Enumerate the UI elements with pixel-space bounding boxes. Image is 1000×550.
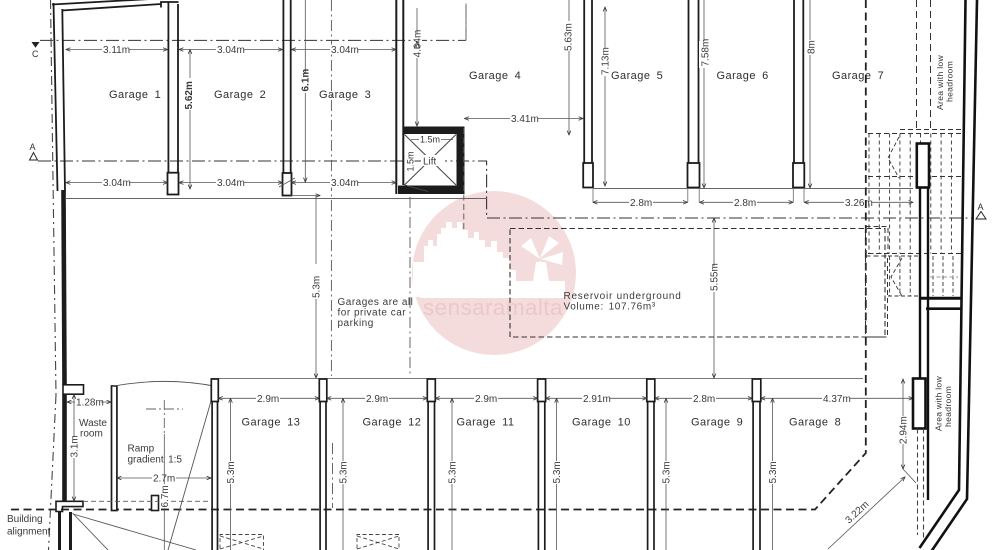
svg-text:headroom: headroom [945, 61, 955, 102]
svg-text:Reservoir underground: Reservoir underground [564, 291, 682, 302]
svg-text:1.28m: 1.28m [76, 398, 104, 409]
svg-text:gradient 1:5: gradient 1:5 [128, 455, 183, 466]
svg-text:for private car: for private car [338, 308, 407, 319]
svg-text:alignment: alignment [7, 527, 51, 538]
svg-text:2.9m: 2.9m [366, 394, 388, 405]
svg-text:7.13m: 7.13m [601, 47, 612, 75]
svg-text:Area with low: Area with low [934, 376, 944, 431]
svg-text:Garage 9: Garage 9 [691, 417, 743, 429]
svg-text:2.91m: 2.91m [583, 394, 611, 405]
svg-text:Garage 7: Garage 7 [832, 70, 884, 82]
svg-text:8m: 8m [807, 40, 818, 54]
svg-text:6.1m: 6.1m [301, 69, 312, 92]
svg-text:5.55m: 5.55m [710, 263, 721, 291]
svg-text:A: A [978, 202, 984, 212]
svg-text:Volume: 107.76m³: Volume: 107.76m³ [564, 302, 656, 313]
svg-text:2.94m: 2.94m [899, 416, 910, 444]
svg-text:5.62m: 5.62m [184, 81, 195, 109]
svg-text:Garage 11: Garage 11 [457, 417, 515, 429]
svg-text:3.04m: 3.04m [331, 45, 359, 56]
svg-text:3.1m: 3.1m [70, 435, 81, 457]
svg-text:5.3m: 5.3m [448, 461, 459, 483]
svg-text:sensaramalta: sensaramalta [423, 295, 563, 320]
svg-text:3.04m: 3.04m [217, 178, 245, 189]
svg-text:4.37m: 4.37m [823, 394, 851, 405]
svg-text:5.3m: 5.3m [662, 461, 673, 483]
svg-text:Garage 10: Garage 10 [572, 417, 631, 429]
svg-text:2.8m: 2.8m [630, 198, 652, 209]
svg-text:Garage 6: Garage 6 [717, 70, 769, 82]
svg-text:room: room [80, 429, 103, 440]
svg-text:headroom: headroom [943, 386, 953, 427]
svg-text:parking: parking [338, 318, 374, 329]
svg-text:3.04m: 3.04m [331, 178, 359, 189]
svg-text:Ramp: Ramp [128, 444, 155, 455]
svg-text:Garage 2: Garage 2 [214, 89, 266, 101]
svg-text:Waste: Waste [79, 418, 107, 429]
svg-text:3.04m: 3.04m [217, 45, 245, 56]
svg-text:7.58m: 7.58m [701, 39, 712, 67]
svg-text:Area with low: Area with low [935, 55, 945, 110]
svg-text:2.8m: 2.8m [734, 198, 756, 209]
svg-text:Garages are all: Garages are all [338, 297, 414, 308]
svg-text:3.11m: 3.11m [103, 45, 130, 56]
svg-text:5.3m: 5.3m [768, 461, 779, 483]
svg-text:Lift: Lift [423, 157, 437, 168]
svg-text:Garage 13: Garage 13 [242, 417, 301, 429]
svg-text:1.5m: 1.5m [420, 135, 440, 145]
svg-text:Garage 5: Garage 5 [611, 70, 663, 82]
svg-text:3.04m: 3.04m [103, 178, 131, 189]
svg-text:Garage 1: Garage 1 [109, 89, 161, 101]
svg-text:C: C [32, 49, 39, 59]
svg-text:2.9m: 2.9m [475, 394, 497, 405]
svg-text:5.3m: 5.3m [339, 461, 350, 483]
svg-text:5.3m: 5.3m [226, 461, 237, 483]
svg-text:5.3m: 5.3m [552, 461, 563, 483]
svg-text:Garage 8: Garage 8 [789, 417, 841, 429]
svg-text:5.63m: 5.63m [564, 23, 575, 51]
svg-text:2.9m: 2.9m [257, 394, 279, 405]
svg-text:Building: Building [7, 514, 43, 525]
svg-text:Garage 3: Garage 3 [319, 89, 371, 101]
svg-text:2.8m: 2.8m [693, 394, 715, 405]
svg-text:6.7m: 6.7m [160, 485, 171, 507]
svg-text:Garage 12: Garage 12 [363, 417, 422, 429]
svg-text:5.3m: 5.3m [312, 276, 323, 298]
svg-text:1.5m: 1.5m [406, 151, 416, 171]
svg-text:Garage 4: Garage 4 [469, 70, 521, 82]
svg-text:A: A [30, 142, 36, 152]
svg-text:3.41m: 3.41m [511, 114, 539, 125]
